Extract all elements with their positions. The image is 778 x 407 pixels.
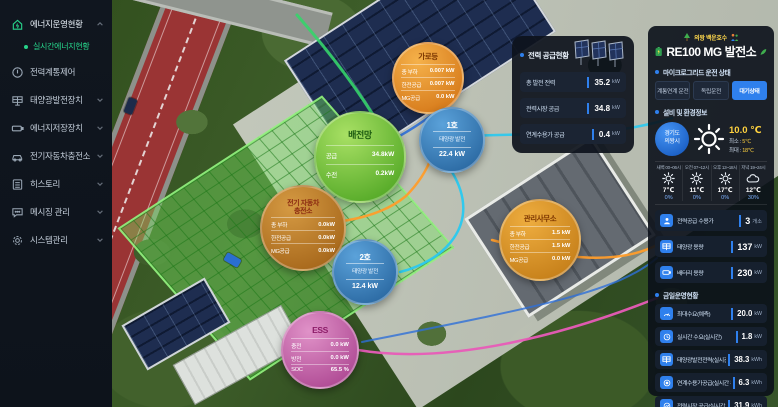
chevron-down-icon xyxy=(96,96,104,104)
marker-office[interactable]: 관리사무소 총 부하1.5 kW 한전공급1.5 kW MG공급0.0 kW xyxy=(499,199,581,281)
supply-row-linked-customer: 연계수용가 공급 0.4kW xyxy=(520,124,626,144)
bullet-dot xyxy=(655,70,659,74)
battery-icon xyxy=(10,121,24,135)
solar-panel-icon xyxy=(660,353,673,366)
solar-panel-icon xyxy=(660,240,673,253)
mg-status-heading: 마이크로그리드 운전 상태 xyxy=(663,67,730,77)
energy-dashboard: 에너지운영현황 실시간에너지현황 전력계통제어 태양광발전장치 에너지저장장치 xyxy=(0,0,778,407)
cloud-icon xyxy=(746,172,760,185)
bullet-dot xyxy=(520,53,524,57)
home-energy-icon xyxy=(10,17,24,31)
sidebar-item-messaging[interactable]: 메시징 관리 xyxy=(0,198,112,226)
bubble-row: 총 부하0.0kW xyxy=(271,217,335,230)
bubble-row: 한전공급0.0kW xyxy=(271,230,335,243)
forecast-dawn: 새벽 00~06시 7℃ 0% xyxy=(655,165,682,201)
forecast-morning: 오전 07~12시 11℃ 0% xyxy=(682,165,710,201)
mode-island-button[interactable]: 독립운전 xyxy=(693,81,728,100)
clock-icon xyxy=(660,330,673,343)
today-row-market-supply: 전력시장 공급(실시간 누계) 31.9kWh xyxy=(655,396,767,407)
plant-title: RE100 MG 발전소 xyxy=(666,43,756,60)
active-dot xyxy=(24,45,28,49)
bubble-row: 방전0.0 kW xyxy=(291,351,349,364)
today-row-realtime-demand: 실시간 수요(실시간) 1.8kW xyxy=(655,327,767,346)
leaf-icon xyxy=(760,46,767,58)
history-list-icon xyxy=(10,177,24,191)
env-heading: 설비 및 환경정보 xyxy=(663,107,707,117)
sidebar-item-realtime-energy[interactable]: 실시간에너지현황 xyxy=(0,38,112,58)
sun-icon xyxy=(690,172,703,185)
person-icon xyxy=(660,214,673,227)
sidebar-item-power-control[interactable]: 전력계통제어 xyxy=(0,58,112,86)
bubble-row: 한전공급1.5 kW xyxy=(510,239,571,252)
bubble-row: SOC65.5 % xyxy=(291,364,349,374)
chevron-down-icon xyxy=(96,152,104,160)
sidebar-item-ev-station[interactable]: 전기자동차충전소 xyxy=(0,142,112,170)
forecast-evening: 저녁 19~24시 12℃ 30% xyxy=(739,165,767,201)
location-badge: 경기도 의왕시 xyxy=(655,122,689,156)
chevron-down-icon xyxy=(96,208,104,216)
marker-pv-unit1[interactable]: 1호 태양광 발전 22.4 kW xyxy=(419,107,485,173)
chevron-up-icon xyxy=(96,20,104,28)
power-control-icon xyxy=(10,65,24,79)
sidebar-item-label: 에너지운영현황 xyxy=(30,18,90,30)
green-battery-icon xyxy=(655,43,662,60)
people-icon xyxy=(730,33,739,42)
today-row-linked-supply: 연계수용가공급(실시간 누계) 6.3kWh xyxy=(655,373,767,392)
bubble-row: MG공급0.0kW xyxy=(271,243,335,256)
supply-row-market-supply: 전력시장 공급 34.8kW xyxy=(520,98,626,118)
sun-icon xyxy=(662,172,675,185)
current-temp: 10.0 ℃ xyxy=(729,125,767,136)
bubble-row: 충전0.0 kW xyxy=(291,338,349,351)
mode-grid-connected-button[interactable]: 계통연계 운전 xyxy=(655,81,690,100)
mode-standby-button[interactable]: 대기상태 xyxy=(732,81,767,100)
marker-streetlight[interactable]: 가로등 총 부하0.007 kW 한전공급0.007 kW MG공급0.0 kW xyxy=(392,42,464,114)
min-temp: 최소 : 5℃ xyxy=(729,137,767,145)
sun-icon xyxy=(719,172,732,185)
bubble-row: 수전0.2kW xyxy=(326,164,395,183)
chevron-down-icon xyxy=(96,236,104,244)
bullet-dot xyxy=(655,110,659,114)
link-icon xyxy=(660,376,673,389)
sidebar-item-solar-device[interactable]: 태양광발전장치 xyxy=(0,86,112,114)
power-supply-panel: 전력 공급현황 총 발전 전력 35.2kW 전력시장 공급 34.8kW 연계… xyxy=(512,36,634,153)
forecast-afternoon: 오후 13~18시 17℃ 0% xyxy=(711,165,739,201)
chevron-down-icon xyxy=(96,124,104,132)
stat-row-customers: 전력공급 수용가 3개소 xyxy=(655,210,767,231)
bubble-row: 총 부하1.5 kW xyxy=(510,226,571,239)
region-label: 의왕 백운호수 xyxy=(694,33,727,42)
today-heading: 금일운영현황 xyxy=(663,290,698,300)
gauge-icon xyxy=(660,307,673,320)
forecast-strip: 새벽 00~06시 7℃ 0% 오전 07~12시 11℃ 0% 오후 13~1… xyxy=(655,161,767,205)
bubble-row: 총 부하0.007 kW xyxy=(401,64,454,77)
solar-panels-graphic xyxy=(574,38,628,68)
supply-panel-title: 전력 공급현황 xyxy=(528,50,569,61)
sidebar-item-system[interactable]: 시스템관리 xyxy=(0,226,112,254)
supply-row-total-generation: 총 발전 전력 35.2kW xyxy=(520,72,626,92)
today-row-max-demand: 최대수요(예측) 20.0kW xyxy=(655,304,767,323)
weather-now: 경기도 의왕시 10.0 ℃ 최소 : 5℃ 최대 : 18℃ xyxy=(655,122,767,156)
mg-mode-buttons: 계통연계 운전 독립운전 대기상태 xyxy=(655,81,767,100)
solar-panel-icon xyxy=(10,93,24,107)
stat-row-battery-capacity: 배터리 용량 230kW xyxy=(655,262,767,283)
marker-ev-station[interactable]: 전기 자동차충전소 총 부하0.0kW 한전공급0.0kW MG공급0.0kW xyxy=(260,185,346,271)
bullet-dot xyxy=(655,293,659,297)
sidebar-item-history[interactable]: 히스토리 xyxy=(0,170,112,198)
sidebar-sub-label: 실시간에너지현황 xyxy=(33,41,89,52)
sidebar: 에너지운영현황 실시간에너지현황 전력계통제어 태양광발전장치 에너지저장장치 xyxy=(0,0,112,407)
stat-row-pv-capacity: 태양광 용량 137kW xyxy=(655,236,767,257)
ev-car-icon xyxy=(10,149,24,163)
bubble-row: 한전공급0.007 kW xyxy=(401,77,454,90)
tree-icon xyxy=(683,33,691,42)
bubble-row: MG공급0.0 kW xyxy=(401,90,454,103)
marker-ess[interactable]: ESS 충전0.0 kW 방전0.0 kW SOC65.5 % xyxy=(281,311,359,389)
sidebar-item-energy-overview[interactable]: 에너지운영현황 xyxy=(0,10,112,38)
gear-icon xyxy=(10,233,24,247)
chevron-down-icon xyxy=(96,180,104,188)
sidebar-item-ess-device[interactable]: 에너지저장장치 xyxy=(0,114,112,142)
bubble-row: 공급34.8kW xyxy=(326,145,395,164)
battery-icon xyxy=(660,266,673,279)
message-bubble-icon xyxy=(10,205,24,219)
sun-icon xyxy=(693,123,725,155)
max-temp: 최대 : 18℃ xyxy=(729,146,767,154)
plant-info-panel: 의왕 백운호수 RE100 MG 발전소 마이크로그리드 운전 상태 계통연계 … xyxy=(648,26,774,396)
marker-pv-unit2[interactable]: 2호 태양광 발전 12.4 kW xyxy=(332,239,398,305)
market-icon xyxy=(660,399,673,407)
marker-distribution-grid[interactable]: 배전망 공급34.8kW 수전0.2kW xyxy=(314,111,406,203)
today-row-pv-generation: 태양광발전전력(실시간 누계) 38.3kWh xyxy=(655,350,767,369)
bubble-row: MG공급0.0 kW xyxy=(510,252,571,265)
